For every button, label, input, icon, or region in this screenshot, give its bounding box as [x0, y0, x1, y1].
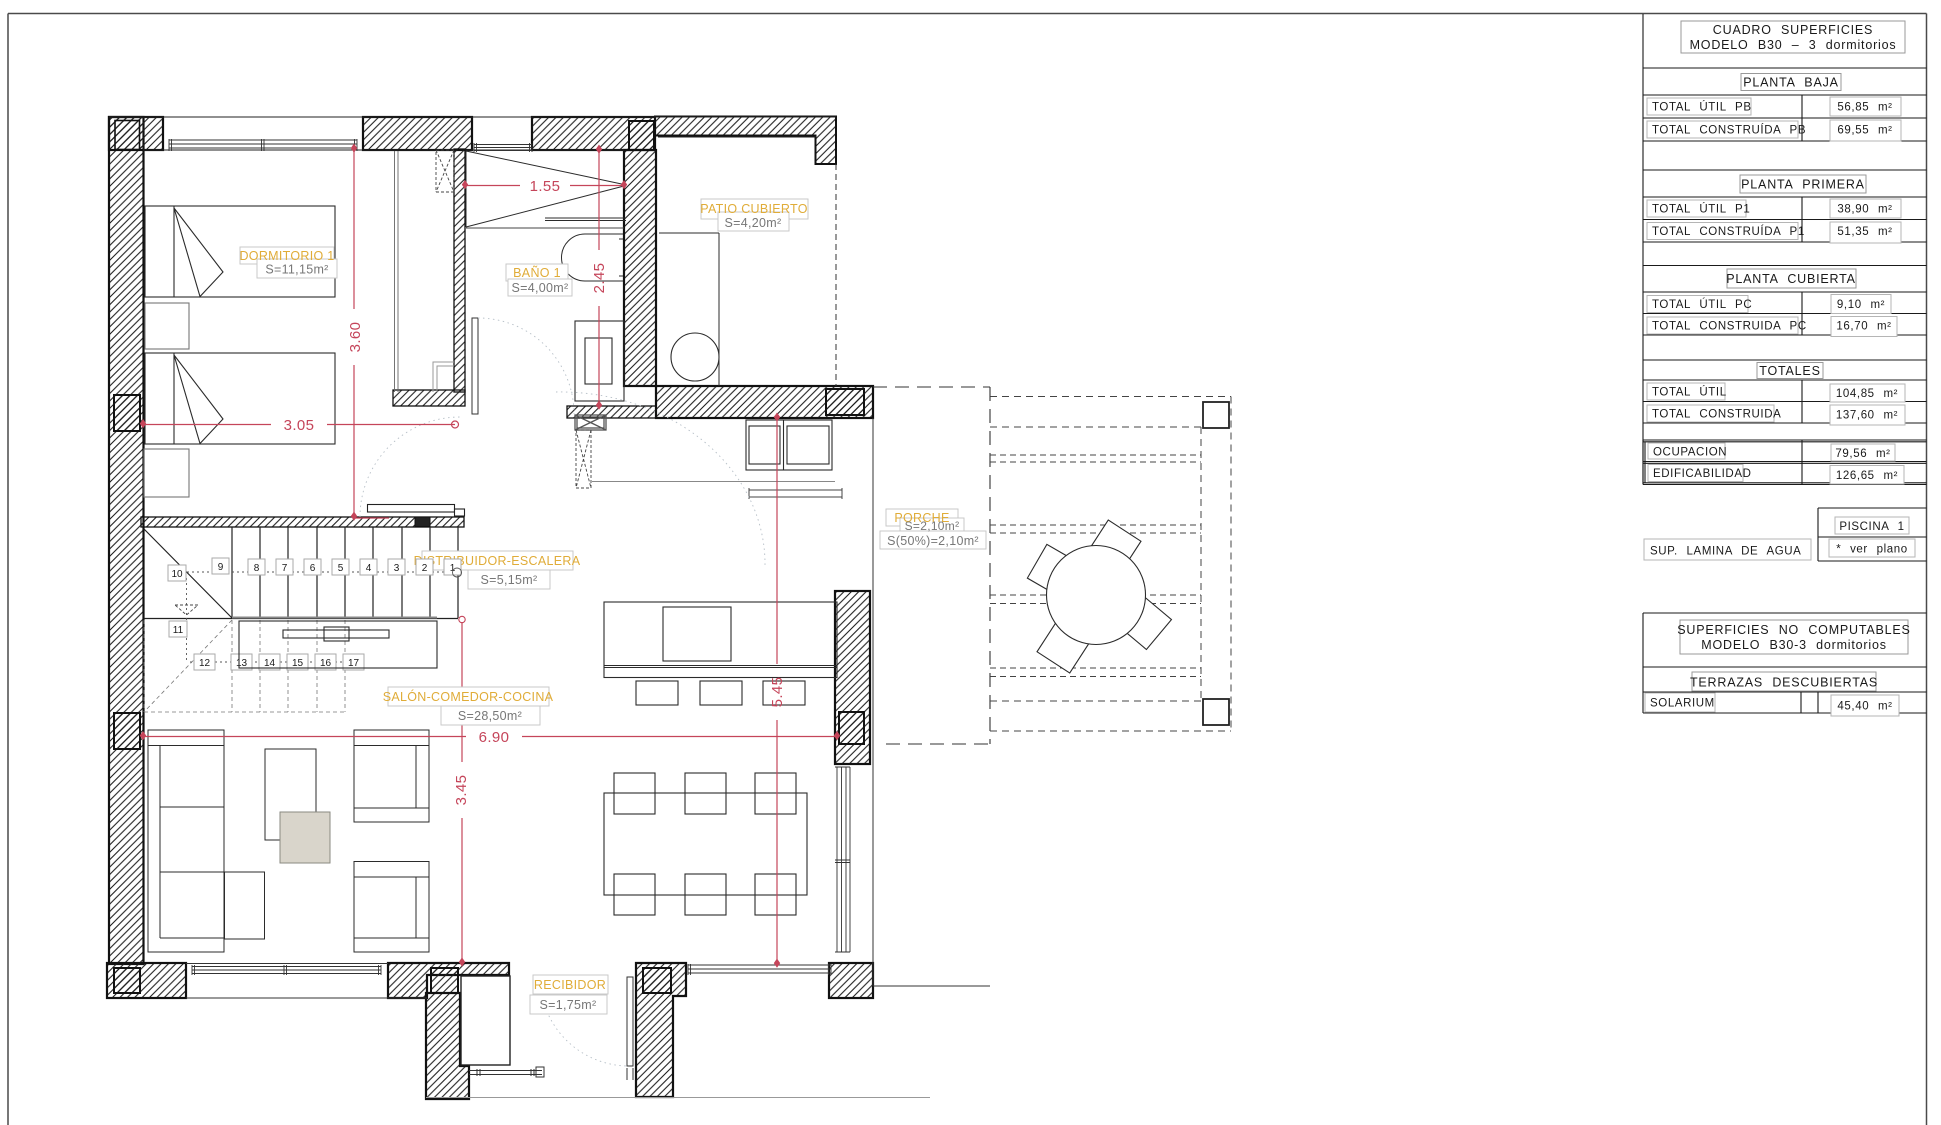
svg-text:PLANTA CUBIERTA: PLANTA CUBIERTA [1726, 272, 1856, 286]
svg-text:1.55: 1.55 [530, 178, 561, 195]
svg-text:10: 10 [171, 569, 183, 580]
svg-text:TOTAL CONSTRUIDA: TOTAL CONSTRUIDA [1652, 409, 1781, 421]
svg-text:S=4,20m²: S=4,20m² [725, 216, 782, 230]
svg-text:45,40 m²: 45,40 m² [1837, 701, 1892, 713]
svg-text:S=1,75m²: S=1,75m² [540, 998, 597, 1012]
svg-text:8: 8 [254, 563, 260, 574]
svg-text:S=28,50m²: S=28,50m² [458, 709, 522, 723]
svg-text:SALÓN-COMEDOR-COCINA: SALÓN-COMEDOR-COCINA [383, 689, 554, 704]
svg-text:CUADRO SUPERFICIES: CUADRO SUPERFICIES [1713, 23, 1873, 37]
svg-text:PISCINA 1: PISCINA 1 [1839, 521, 1904, 533]
svg-text:79,56 m²: 79,56 m² [1835, 448, 1890, 460]
svg-text:OCUPACION: OCUPACION [1653, 447, 1727, 459]
svg-text:51,35 m²: 51,35 m² [1837, 226, 1892, 238]
svg-text:SOLARIUM: SOLARIUM [1650, 698, 1715, 710]
svg-text:TOTAL ÚTIL PB: TOTAL ÚTIL PB [1652, 101, 1752, 114]
svg-text:PATIO CUBIERTO: PATIO CUBIERTO [700, 202, 807, 216]
svg-text:6: 6 [310, 563, 316, 574]
svg-text:3: 3 [394, 563, 400, 574]
svg-text:TERRAZAS DESCUBIERTAS: TERRAZAS DESCUBIERTAS [1690, 676, 1878, 690]
svg-text:3.60: 3.60 [347, 322, 364, 353]
svg-text:5: 5 [338, 563, 344, 574]
svg-text:17: 17 [348, 658, 360, 669]
svg-text:15: 15 [292, 658, 304, 669]
svg-text:7: 7 [282, 563, 288, 574]
svg-text:S=5,15m²: S=5,15m² [481, 573, 538, 587]
svg-text:MODELO B30-3 dormitorios: MODELO B30-3 dormitorios [1701, 638, 1887, 652]
svg-text:3.45: 3.45 [453, 775, 470, 806]
svg-text:PLANTA PRIMERA: PLANTA PRIMERA [1741, 178, 1865, 192]
svg-text:* ver plano: * ver plano [1836, 544, 1908, 556]
svg-text:DISTRIBUIDOR-ESCALERA: DISTRIBUIDOR-ESCALERA [414, 554, 581, 568]
svg-text:69,55 m²: 69,55 m² [1837, 125, 1892, 137]
svg-text:EDIFICABILIDAD: EDIFICABILIDAD [1653, 468, 1752, 480]
svg-text:11: 11 [173, 625, 184, 636]
svg-text:2.45: 2.45 [591, 263, 608, 294]
svg-text:126,65 m²: 126,65 m² [1836, 470, 1898, 482]
svg-text:S=2,10m²: S=2,10m² [905, 519, 960, 533]
svg-text:DORMITORIO 1: DORMITORIO 1 [239, 249, 334, 263]
svg-text:4: 4 [366, 563, 372, 574]
svg-text:14: 14 [264, 658, 276, 669]
svg-text:16: 16 [320, 658, 332, 669]
svg-text:SUP. LAMINA DE AGUA: SUP. LAMINA DE AGUA [1650, 546, 1801, 558]
svg-text:104,85 m²: 104,85 m² [1836, 388, 1898, 400]
svg-text:9: 9 [218, 562, 224, 573]
svg-text:TOTAL ÚTIL P1: TOTAL ÚTIL P1 [1652, 203, 1750, 216]
svg-text:SUPERFICIES NO COMPUTABLES: SUPERFICIES NO COMPUTABLES [1677, 623, 1910, 637]
svg-text:38,90 m²: 38,90 m² [1837, 204, 1892, 216]
svg-text:12: 12 [199, 658, 211, 669]
svg-text:MODELO B30 – 3 dormitorios: MODELO B30 – 3 dormitorios [1690, 38, 1897, 52]
svg-text:3.05: 3.05 [284, 417, 315, 434]
svg-text:6.90: 6.90 [479, 729, 510, 746]
svg-text:PLANTA BAJA: PLANTA BAJA [1743, 76, 1839, 90]
svg-text:TOTAL CONSTRUIDA PC: TOTAL CONSTRUIDA PC [1652, 321, 1807, 333]
svg-text:56,85 m²: 56,85 m² [1837, 102, 1892, 114]
svg-text:BAÑO 1: BAÑO 1 [513, 266, 561, 280]
svg-text:9,10 m²: 9,10 m² [1837, 299, 1885, 311]
svg-text:137,60 m²: 137,60 m² [1836, 410, 1898, 422]
svg-text:TOTAL ÚTIL PC: TOTAL ÚTIL PC [1652, 298, 1752, 311]
svg-text:TOTALES: TOTALES [1759, 364, 1820, 378]
svg-text:13: 13 [236, 658, 248, 669]
svg-text:TOTAL ÚTIL: TOTAL ÚTIL [1652, 386, 1727, 399]
svg-text:5.45: 5.45 [769, 677, 786, 708]
svg-text:S(50%)=2,10m²: S(50%)=2,10m² [887, 534, 979, 548]
svg-text:S=4,00m²: S=4,00m² [512, 281, 569, 295]
svg-text:2: 2 [422, 563, 428, 574]
svg-text:TOTAL CONSTRUÍDA P1: TOTAL CONSTRUÍDA P1 [1652, 225, 1805, 238]
svg-text:TOTAL CONSTRUÍDA PB: TOTAL CONSTRUÍDA PB [1652, 124, 1806, 137]
svg-text:16,70 m²: 16,70 m² [1836, 321, 1891, 333]
svg-text:S=11,15m²: S=11,15m² [265, 263, 328, 277]
svg-text:RECIBIDOR: RECIBIDOR [534, 978, 606, 992]
